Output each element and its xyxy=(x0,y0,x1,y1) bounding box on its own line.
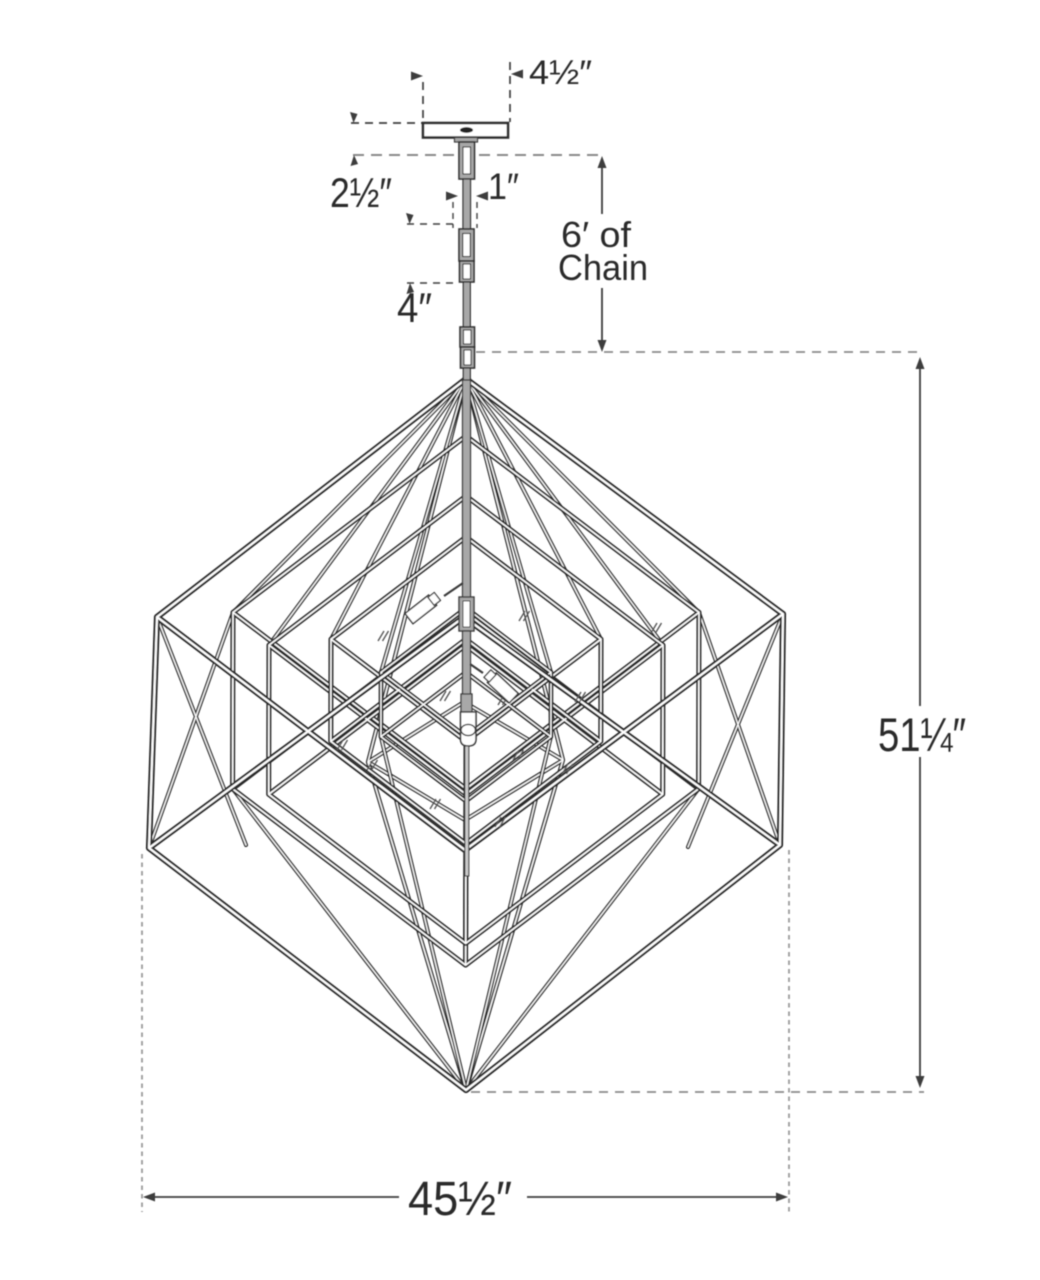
svg-text:4½″: 4½″ xyxy=(529,54,592,92)
svg-text:45½″: 45½″ xyxy=(408,1173,512,1226)
svg-text:2½″: 2½″ xyxy=(330,169,392,216)
svg-text:1″: 1″ xyxy=(488,166,519,207)
svg-text:Chain: Chain xyxy=(558,247,648,288)
svg-text:4″: 4″ xyxy=(397,284,432,331)
svg-text:51¼″: 51¼″ xyxy=(878,708,966,761)
